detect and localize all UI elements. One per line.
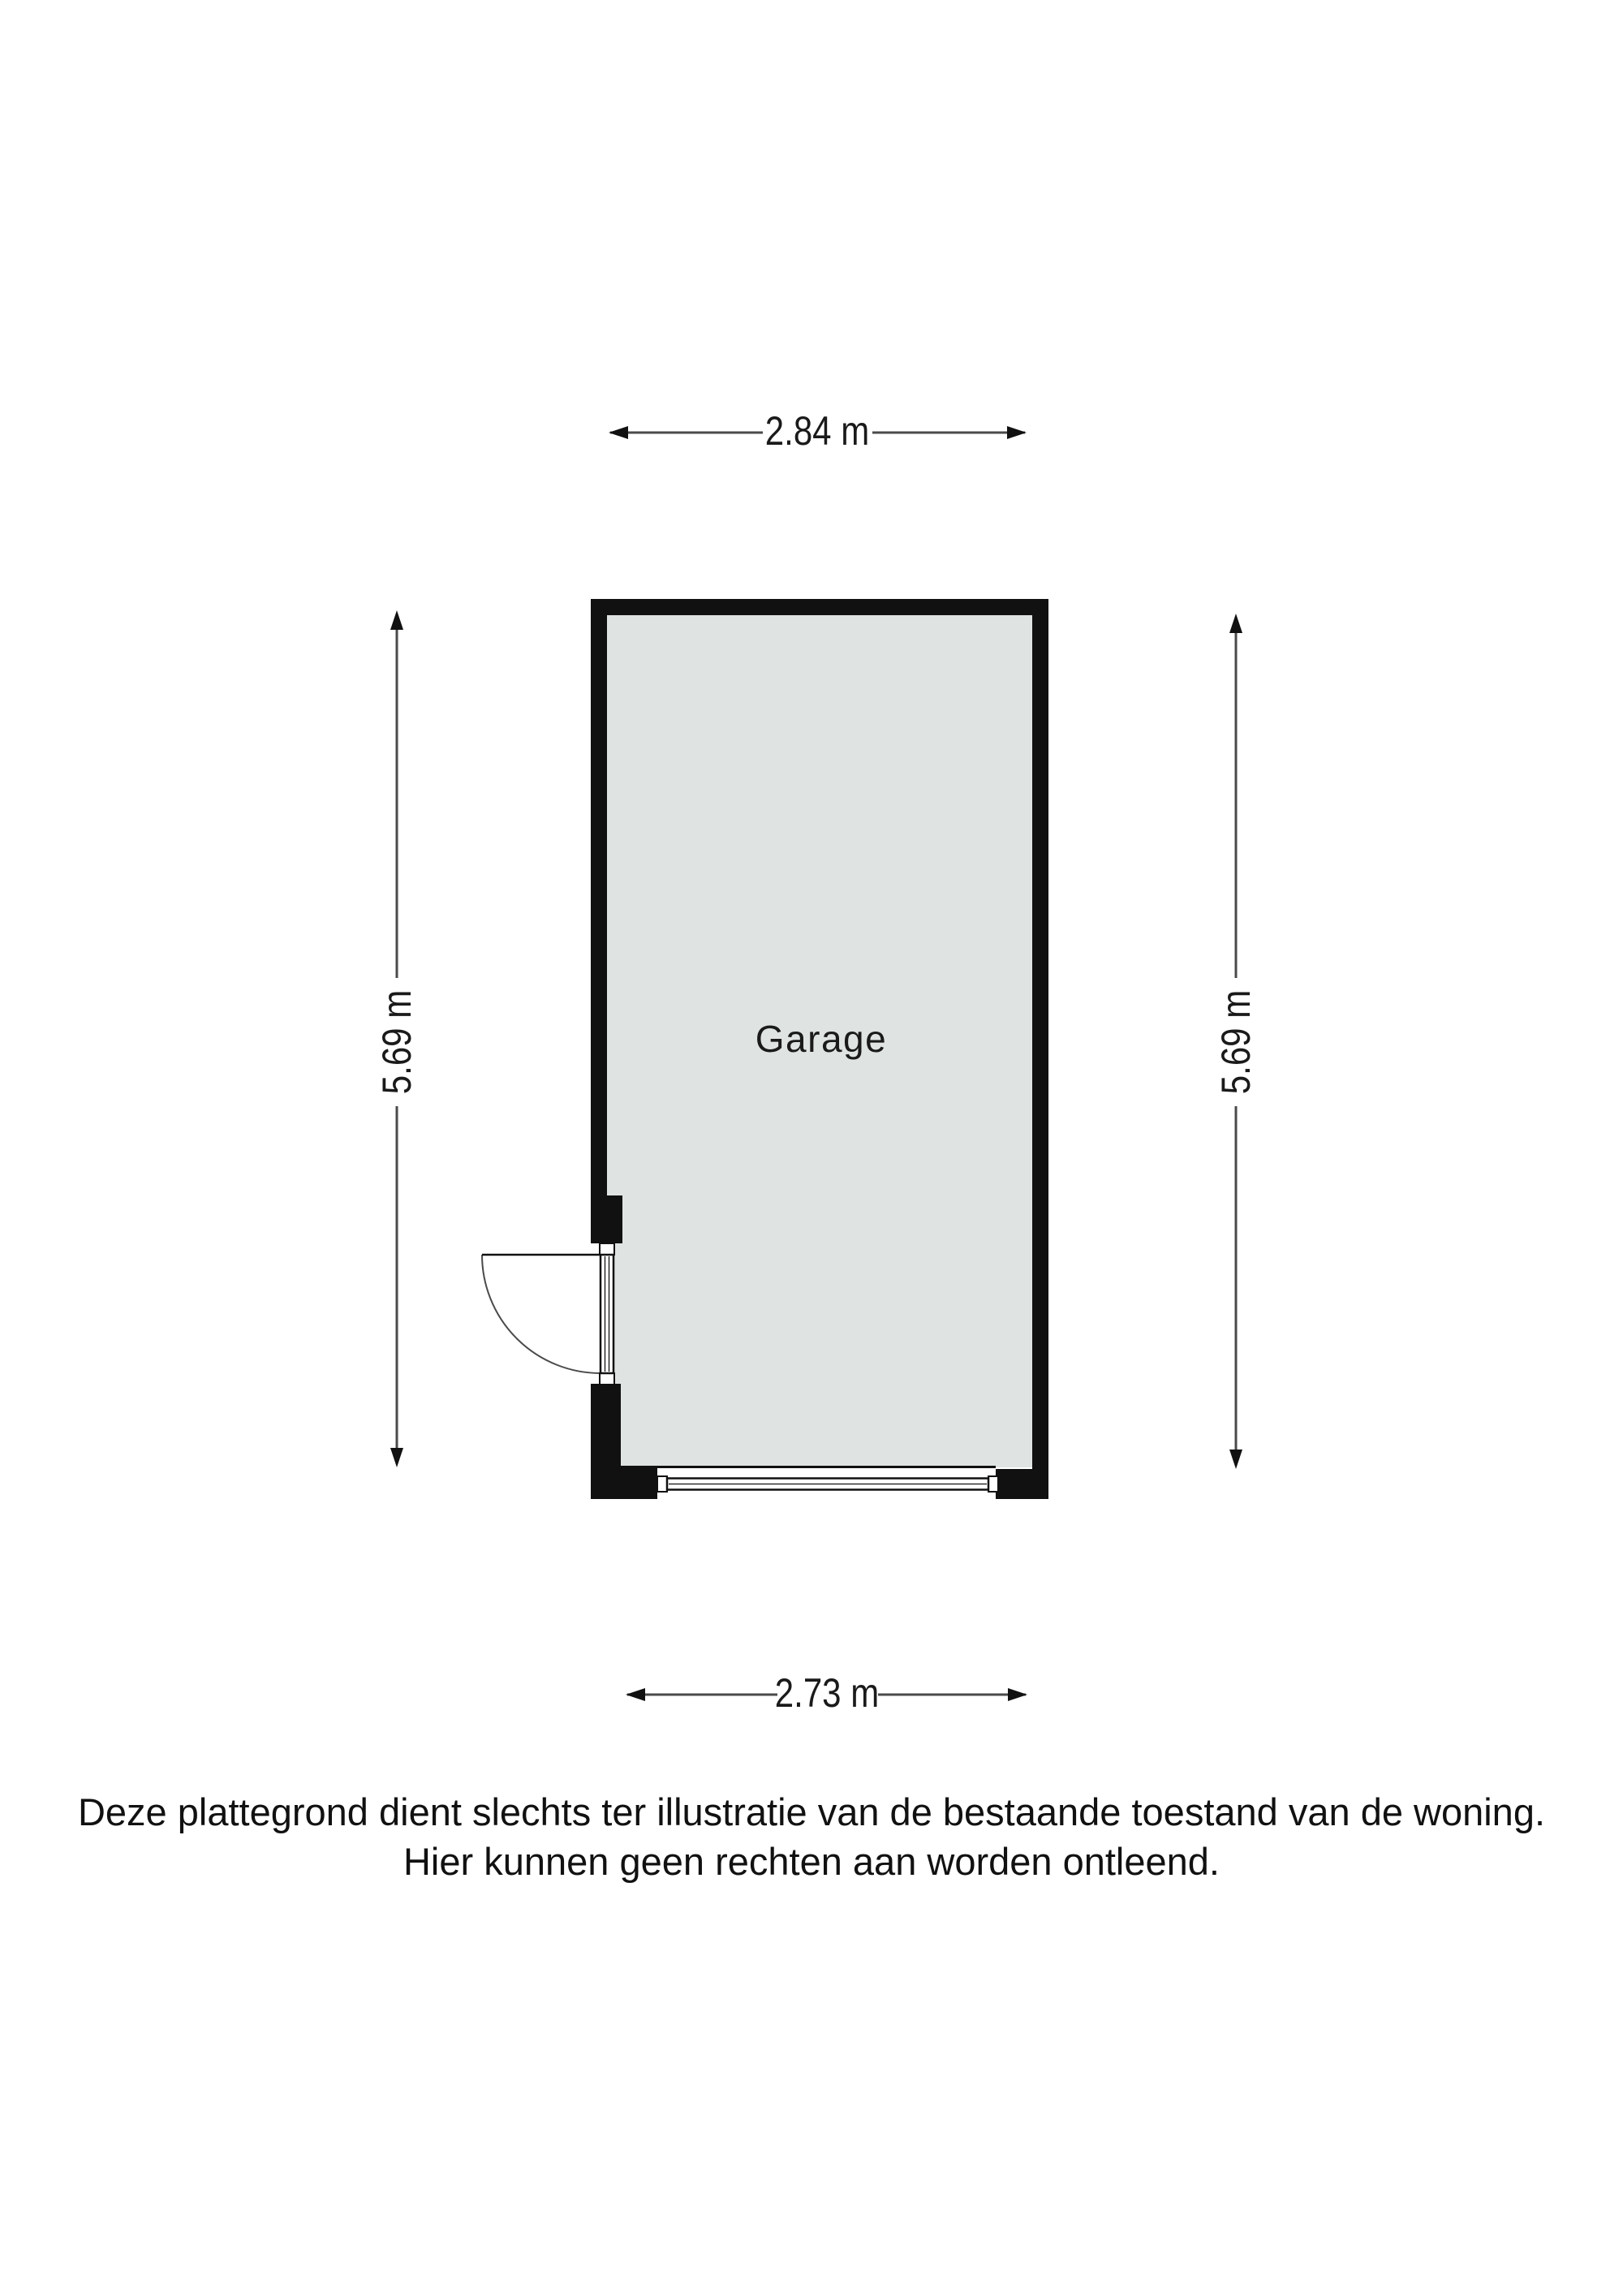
disclaimer-line-2: Hier kunnen geen rechten aan worden ontl… [0, 1837, 1623, 1886]
door-frame-top [600, 1243, 614, 1255]
arrowhead-left-icon [609, 426, 628, 439]
garage-door-cap-left [657, 1476, 667, 1492]
floorplan-linework [0, 0, 1623, 2296]
arrowhead-left-icon [626, 1688, 645, 1701]
dimension-label-top: 2.84 m [765, 407, 869, 454]
room-label-garage: Garage [756, 1017, 887, 1061]
arrowhead-up-icon [390, 610, 403, 630]
arrowhead-up-icon [1229, 614, 1242, 633]
garage-door-symbol [657, 1476, 998, 1492]
arrowhead-right-icon [1007, 426, 1027, 439]
dimension-label-left: 5.69 m [373, 990, 420, 1094]
dimension-label-right: 5.69 m [1212, 990, 1259, 1094]
dimension-label-bottom: 2.73 m [775, 1669, 879, 1717]
door-swing-arc [482, 1255, 601, 1373]
door-symbol [482, 1243, 614, 1385]
garage-door-cap-right [988, 1476, 998, 1492]
arrowhead-down-icon [1229, 1450, 1242, 1469]
disclaimer-line-1: Deze plattegrond dient slechts ter illus… [0, 1787, 1623, 1837]
arrowhead-right-icon [1008, 1688, 1027, 1701]
door-frame-bottom [600, 1373, 614, 1385]
door-leaf [601, 1255, 613, 1373]
floorplan-page: 2.84 m 2.73 m 5.69 m 5.69 m Garage Deze … [0, 0, 1623, 2296]
disclaimer-text: Deze plattegrond dient slechts ter illus… [0, 1787, 1623, 1886]
arrowhead-down-icon [390, 1448, 403, 1467]
